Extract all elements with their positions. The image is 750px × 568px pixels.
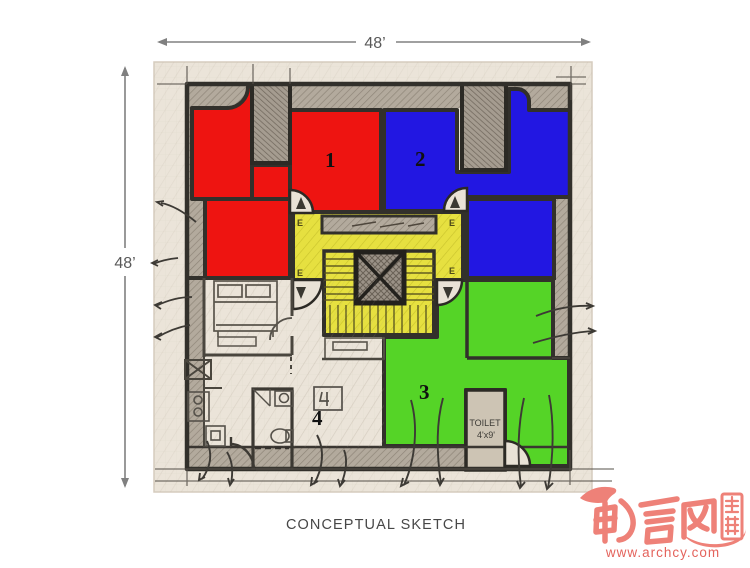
svg-text:48’: 48’ bbox=[114, 255, 135, 272]
svg-text:4'x9': 4'x9' bbox=[477, 430, 495, 440]
svg-text:E: E bbox=[449, 266, 455, 276]
svg-text:48’: 48’ bbox=[364, 35, 385, 52]
svg-text:E: E bbox=[449, 218, 455, 228]
svg-text:E: E bbox=[297, 218, 303, 228]
svg-text:CONCEPTUAL SKETCH: CONCEPTUAL SKETCH bbox=[286, 517, 466, 533]
svg-text:3: 3 bbox=[419, 380, 430, 404]
svg-text:4: 4 bbox=[312, 406, 323, 430]
svg-text:www.archcy.com: www.archcy.com bbox=[605, 545, 720, 560]
svg-text:1: 1 bbox=[325, 148, 336, 172]
svg-text:TOILET: TOILET bbox=[469, 418, 501, 428]
svg-text:E: E bbox=[297, 268, 303, 278]
svg-text:2: 2 bbox=[415, 147, 426, 171]
